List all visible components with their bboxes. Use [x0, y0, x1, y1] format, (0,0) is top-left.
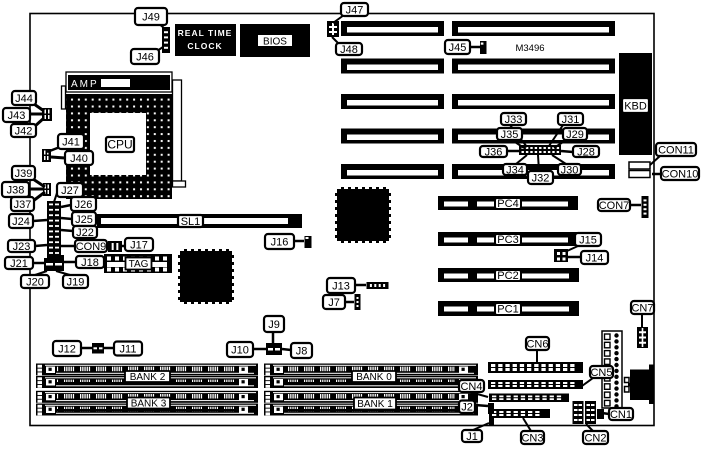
- svg-text:J49: J49: [142, 11, 160, 23]
- svg-text:J22: J22: [76, 227, 94, 239]
- svg-text:CN7: CN7: [631, 302, 653, 314]
- svg-text:J35: J35: [501, 129, 519, 141]
- svg-text:J46: J46: [136, 51, 154, 63]
- svg-text:CON7: CON7: [599, 200, 630, 212]
- svg-text:CN4: CN4: [460, 381, 482, 393]
- svg-text:CON9: CON9: [76, 241, 107, 253]
- svg-text:KBD: KBD: [624, 100, 647, 112]
- svg-text:J30: J30: [561, 164, 579, 176]
- svg-text:J39: J39: [15, 168, 33, 180]
- svg-text:PC4: PC4: [497, 198, 518, 210]
- svg-text:J42: J42: [15, 125, 33, 137]
- svg-text:J36: J36: [485, 146, 503, 158]
- svg-text:J25: J25: [75, 214, 93, 226]
- svg-text:J44: J44: [15, 93, 33, 105]
- svg-text:J33: J33: [505, 114, 523, 126]
- svg-text:J14: J14: [586, 252, 604, 264]
- svg-text:J45: J45: [449, 42, 467, 54]
- svg-text:J16: J16: [271, 236, 289, 248]
- svg-text:J27: J27: [61, 185, 79, 197]
- svg-text:BANK 1: BANK 1: [357, 399, 393, 410]
- svg-text:J13: J13: [332, 280, 350, 292]
- svg-text:J32: J32: [532, 172, 550, 184]
- svg-text:AMP: AMP: [71, 79, 99, 90]
- svg-text:J48: J48: [340, 44, 358, 56]
- svg-text:CN3: CN3: [521, 432, 543, 444]
- svg-text:J8: J8: [296, 345, 308, 357]
- svg-text:J34: J34: [506, 164, 524, 176]
- svg-text:J17: J17: [130, 239, 148, 251]
- svg-text:J11: J11: [120, 343, 137, 355]
- svg-text:J43: J43: [8, 110, 26, 122]
- svg-text:TAG: TAG: [129, 259, 149, 270]
- svg-text:REAL TIME: REAL TIME: [178, 28, 233, 38]
- svg-text:J28: J28: [577, 146, 595, 158]
- svg-text:J7: J7: [328, 297, 340, 309]
- svg-text:CN5: CN5: [590, 367, 612, 379]
- svg-text:CN2: CN2: [584, 432, 606, 444]
- svg-text:CN6: CN6: [526, 338, 548, 350]
- svg-text:J47: J47: [346, 4, 364, 16]
- svg-text:J21: J21: [10, 258, 28, 270]
- svg-text:PC3: PC3: [497, 234, 518, 246]
- svg-text:CON11: CON11: [658, 144, 694, 156]
- svg-text:J1: J1: [466, 431, 478, 443]
- svg-text:BIOS: BIOS: [263, 37, 287, 48]
- svg-text:J19: J19: [67, 276, 85, 288]
- svg-text:J38: J38: [7, 184, 25, 196]
- svg-text:J29: J29: [566, 129, 584, 141]
- svg-text:J10: J10: [231, 344, 249, 356]
- svg-text:PC1: PC1: [497, 304, 518, 316]
- svg-text:J18: J18: [81, 257, 99, 269]
- svg-text:J23: J23: [13, 241, 31, 253]
- svg-text:J20: J20: [26, 276, 44, 288]
- svg-text:M3496: M3496: [515, 43, 544, 54]
- svg-text:CLOCK: CLOCK: [187, 41, 222, 51]
- svg-text:BANK 2: BANK 2: [130, 372, 166, 383]
- svg-text:J24: J24: [12, 216, 30, 228]
- svg-text:BANK 0: BANK 0: [356, 372, 392, 383]
- svg-text:CN1: CN1: [610, 409, 632, 421]
- svg-text:CPU: CPU: [107, 138, 132, 152]
- svg-text:J37: J37: [14, 199, 32, 211]
- svg-text:CON10: CON10: [662, 168, 699, 180]
- svg-text:BANK 3: BANK 3: [131, 399, 167, 410]
- svg-text:J26: J26: [75, 199, 93, 211]
- svg-text:J9: J9: [268, 319, 280, 331]
- svg-text:J31: J31: [562, 114, 580, 126]
- svg-text:J41: J41: [62, 136, 80, 148]
- svg-text:SL1: SL1: [181, 216, 201, 228]
- svg-text:PC2: PC2: [497, 270, 518, 282]
- svg-text:J2: J2: [461, 402, 473, 414]
- svg-text:J12: J12: [58, 343, 76, 355]
- svg-text:J15: J15: [579, 234, 597, 246]
- svg-text:J40: J40: [70, 153, 88, 165]
